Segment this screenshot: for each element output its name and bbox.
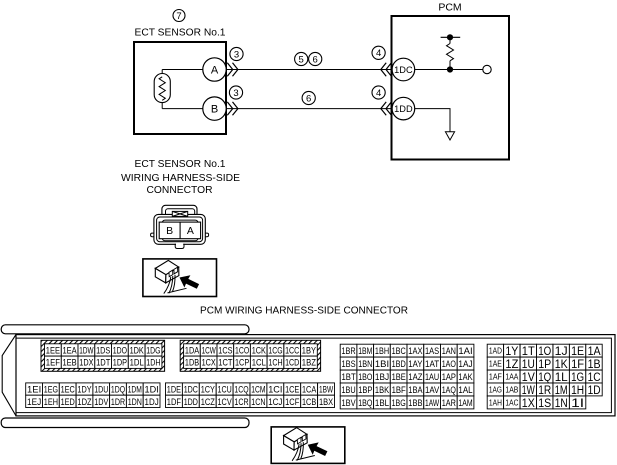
svg-text:1BA: 1BA: [408, 385, 423, 396]
svg-text:1DT: 1DT: [96, 358, 110, 369]
svg-text:1DV: 1DV: [94, 397, 109, 408]
svg-text:1DY: 1DY: [77, 385, 92, 396]
svg-text:1H: 1H: [571, 383, 584, 397]
svg-text:1DD: 1DD: [184, 397, 198, 408]
svg-text:1DI: 1DI: [145, 385, 159, 396]
svg-text:1U: 1U: [522, 357, 535, 371]
svg-text:1AD: 1AD: [489, 347, 502, 356]
svg-text:1AS: 1AS: [425, 346, 439, 357]
svg-text:1R: 1R: [538, 383, 551, 397]
svg-text:ECT SENSOR No.1: ECT SENSOR No.1: [135, 27, 226, 39]
svg-text:1BS: 1BS: [342, 359, 356, 370]
svg-text:6: 6: [313, 54, 318, 65]
svg-text:1DL: 1DL: [130, 358, 145, 369]
svg-text:1AR: 1AR: [442, 398, 456, 409]
svg-text:1CO: 1CO: [235, 345, 249, 356]
svg-text:1AK: 1AK: [458, 372, 473, 383]
svg-text:1BY: 1BY: [302, 345, 317, 356]
svg-text:1EA: 1EA: [63, 345, 78, 356]
svg-text:1DZ: 1DZ: [77, 397, 91, 408]
svg-text:1EC: 1EC: [61, 385, 75, 396]
svg-text:1BK: 1BK: [375, 385, 390, 396]
svg-text:1BW: 1BW: [319, 385, 334, 396]
svg-text:1Z: 1Z: [505, 357, 518, 371]
svg-text:1BR: 1BR: [342, 346, 356, 357]
svg-text:1CQ: 1CQ: [234, 385, 248, 396]
svg-text:1AA: 1AA: [505, 373, 519, 382]
svg-text:1CM: 1CM: [251, 385, 265, 396]
svg-text:1CH: 1CH: [268, 358, 282, 369]
svg-text:1Q: 1Q: [538, 370, 551, 384]
svg-text:1BI: 1BI: [375, 359, 389, 370]
svg-text:1BO: 1BO: [358, 372, 372, 383]
svg-text:1J: 1J: [555, 344, 568, 358]
svg-text:1BP: 1BP: [358, 385, 372, 396]
svg-text:1BL: 1BL: [375, 398, 390, 409]
svg-text:1C: 1C: [588, 370, 601, 384]
svg-text:1BF: 1BF: [392, 385, 406, 396]
svg-text:1AM: 1AM: [458, 398, 472, 409]
svg-text:1CR: 1CR: [234, 397, 248, 408]
svg-text:1AN: 1AN: [442, 346, 456, 357]
svg-text:1CS: 1CS: [218, 345, 232, 356]
svg-text:1DQ: 1DQ: [111, 385, 125, 396]
svg-text:1BG: 1BG: [392, 398, 406, 409]
svg-text:1AW: 1AW: [425, 398, 440, 409]
svg-text:1EB: 1EB: [63, 358, 77, 369]
svg-text:1L: 1L: [555, 370, 568, 384]
svg-text:1CB: 1CB: [302, 397, 316, 408]
svg-text:1DS: 1DS: [96, 345, 110, 356]
svg-text:1E: 1E: [571, 344, 584, 358]
svg-text:1CU: 1CU: [218, 385, 232, 396]
svg-text:1CF: 1CF: [285, 397, 299, 408]
svg-text:PCM WIRING HARNESS-SIDE CONNEC: PCM WIRING HARNESS-SIDE CONNECTOR: [200, 305, 408, 317]
svg-text:6: 6: [306, 93, 311, 104]
svg-text:A: A: [211, 65, 219, 77]
svg-text:1AB: 1AB: [505, 385, 518, 394]
svg-text:1AZ: 1AZ: [408, 372, 422, 383]
svg-text:1CZ: 1CZ: [201, 397, 215, 408]
svg-text:B: B: [166, 225, 173, 237]
svg-text:1CA: 1CA: [302, 385, 317, 396]
svg-text:1Y: 1Y: [505, 344, 518, 358]
svg-text:1V: 1V: [522, 370, 536, 384]
svg-text:1EG: 1EG: [44, 385, 58, 396]
svg-text:1AG: 1AG: [489, 385, 502, 394]
svg-text:1AU: 1AU: [425, 372, 439, 383]
svg-text:1K: 1K: [555, 357, 568, 371]
svg-text:1CY: 1CY: [201, 385, 216, 396]
svg-text:1AL: 1AL: [458, 385, 473, 396]
svg-text:1CE: 1CE: [285, 385, 299, 396]
svg-text:1EJ: 1EJ: [27, 397, 41, 408]
svg-text:1DC: 1DC: [184, 385, 198, 396]
svg-text:1CW: 1CW: [202, 345, 217, 356]
svg-text:1EH: 1EH: [44, 397, 58, 408]
svg-text:1DU: 1DU: [94, 385, 108, 396]
svg-text:1DF: 1DF: [167, 397, 181, 408]
svg-text:1G: 1G: [571, 370, 584, 384]
svg-text:CONNECTOR: CONNECTOR: [147, 184, 213, 196]
svg-text:1BU: 1BU: [342, 385, 356, 396]
svg-text:1DD: 1DD: [394, 104, 413, 115]
svg-text:3: 3: [234, 49, 239, 60]
svg-text:1AT: 1AT: [425, 359, 439, 370]
svg-text:1DJ: 1DJ: [145, 397, 159, 408]
svg-text:4: 4: [376, 88, 381, 99]
svg-text:1BQ: 1BQ: [358, 398, 372, 409]
svg-text:1EE: 1EE: [46, 345, 60, 356]
svg-text:1DG: 1DG: [146, 345, 160, 356]
svg-text:4: 4: [376, 48, 381, 59]
svg-text:3: 3: [233, 88, 238, 99]
svg-text:1DE: 1DE: [167, 385, 181, 396]
svg-text:1M: 1M: [555, 383, 568, 397]
svg-text:1AJ: 1AJ: [458, 359, 472, 370]
svg-text:1N: 1N: [555, 396, 568, 410]
svg-text:1CD: 1CD: [285, 358, 299, 369]
svg-text:1BJ: 1BJ: [375, 372, 389, 383]
svg-text:1EF: 1EF: [46, 358, 60, 369]
svg-text:1DX: 1DX: [79, 358, 94, 369]
svg-text:1I: 1I: [571, 396, 584, 410]
svg-text:1BE: 1BE: [392, 372, 406, 383]
svg-text:1AV: 1AV: [425, 385, 440, 396]
svg-text:1AI: 1AI: [458, 346, 472, 357]
svg-text:1CK: 1CK: [252, 345, 267, 356]
svg-text:1DK: 1DK: [130, 345, 145, 356]
svg-text:1D: 1D: [588, 383, 601, 397]
svg-text:1AP: 1AP: [442, 372, 456, 383]
svg-text:1F: 1F: [571, 357, 584, 371]
svg-text:1AY: 1AY: [408, 359, 423, 370]
svg-text:1AQ: 1AQ: [442, 385, 456, 396]
svg-text:1CT: 1CT: [218, 358, 232, 369]
svg-text:1CX: 1CX: [202, 358, 217, 369]
svg-text:1BD: 1BD: [392, 359, 406, 370]
svg-text:1BZ: 1BZ: [302, 358, 316, 369]
svg-text:1BC: 1BC: [392, 346, 406, 357]
svg-text:1BH: 1BH: [375, 346, 389, 357]
svg-text:1P: 1P: [538, 357, 551, 371]
svg-text:1EI: 1EI: [27, 385, 41, 396]
svg-text:B: B: [211, 104, 218, 116]
svg-text:1ED: 1ED: [61, 397, 75, 408]
svg-text:1B: 1B: [588, 357, 601, 371]
svg-text:1W: 1W: [522, 383, 535, 397]
svg-text:1A: 1A: [588, 344, 602, 358]
svg-text:1DA: 1DA: [185, 345, 200, 356]
svg-text:1BT: 1BT: [342, 372, 356, 383]
svg-text:1CJ: 1CJ: [268, 397, 282, 408]
svg-text:1X: 1X: [522, 396, 535, 410]
svg-text:1DC: 1DC: [394, 65, 413, 76]
svg-text:1DB: 1DB: [185, 358, 199, 369]
svg-text:1CC: 1CC: [285, 345, 299, 356]
svg-text:1CN: 1CN: [251, 397, 265, 408]
svg-text:1DN: 1DN: [128, 397, 142, 408]
svg-text:1S: 1S: [538, 396, 551, 410]
svg-text:1DP: 1DP: [113, 358, 127, 369]
svg-text:1AH: 1AH: [489, 398, 502, 407]
svg-text:WIRING HARNESS-SIDE: WIRING HARNESS-SIDE: [121, 172, 240, 184]
svg-text:1AX: 1AX: [408, 346, 423, 357]
svg-text:A: A: [187, 225, 194, 237]
svg-text:1AE: 1AE: [489, 360, 502, 369]
svg-text:1CV: 1CV: [218, 397, 233, 408]
svg-text:1BB: 1BB: [408, 398, 422, 409]
svg-text:1AO: 1AO: [442, 359, 456, 370]
svg-text:1CI: 1CI: [268, 385, 282, 396]
svg-text:1BX: 1BX: [319, 397, 334, 408]
svg-text:1AC: 1AC: [505, 398, 518, 407]
svg-text:1O: 1O: [538, 344, 551, 358]
svg-text:1BN: 1BN: [358, 359, 372, 370]
svg-text:ECT SENSOR No.1: ECT SENSOR No.1: [135, 158, 226, 170]
svg-text:1DH: 1DH: [146, 358, 160, 369]
svg-text:1DM: 1DM: [128, 385, 142, 396]
svg-text:1CG: 1CG: [268, 345, 282, 356]
svg-text:5: 5: [299, 54, 304, 65]
svg-text:1DO: 1DO: [113, 345, 127, 356]
svg-text:1BV: 1BV: [342, 398, 357, 409]
svg-text:1BM: 1BM: [358, 346, 372, 357]
svg-text:7: 7: [176, 11, 181, 22]
svg-text:1DR: 1DR: [111, 397, 125, 408]
svg-text:1CP: 1CP: [235, 358, 249, 369]
svg-text:1DW: 1DW: [79, 345, 94, 356]
svg-text:1T: 1T: [522, 344, 535, 358]
svg-text:1CL: 1CL: [252, 358, 267, 369]
svg-text:PCM: PCM: [438, 2, 461, 14]
svg-text:1AF: 1AF: [489, 373, 502, 382]
